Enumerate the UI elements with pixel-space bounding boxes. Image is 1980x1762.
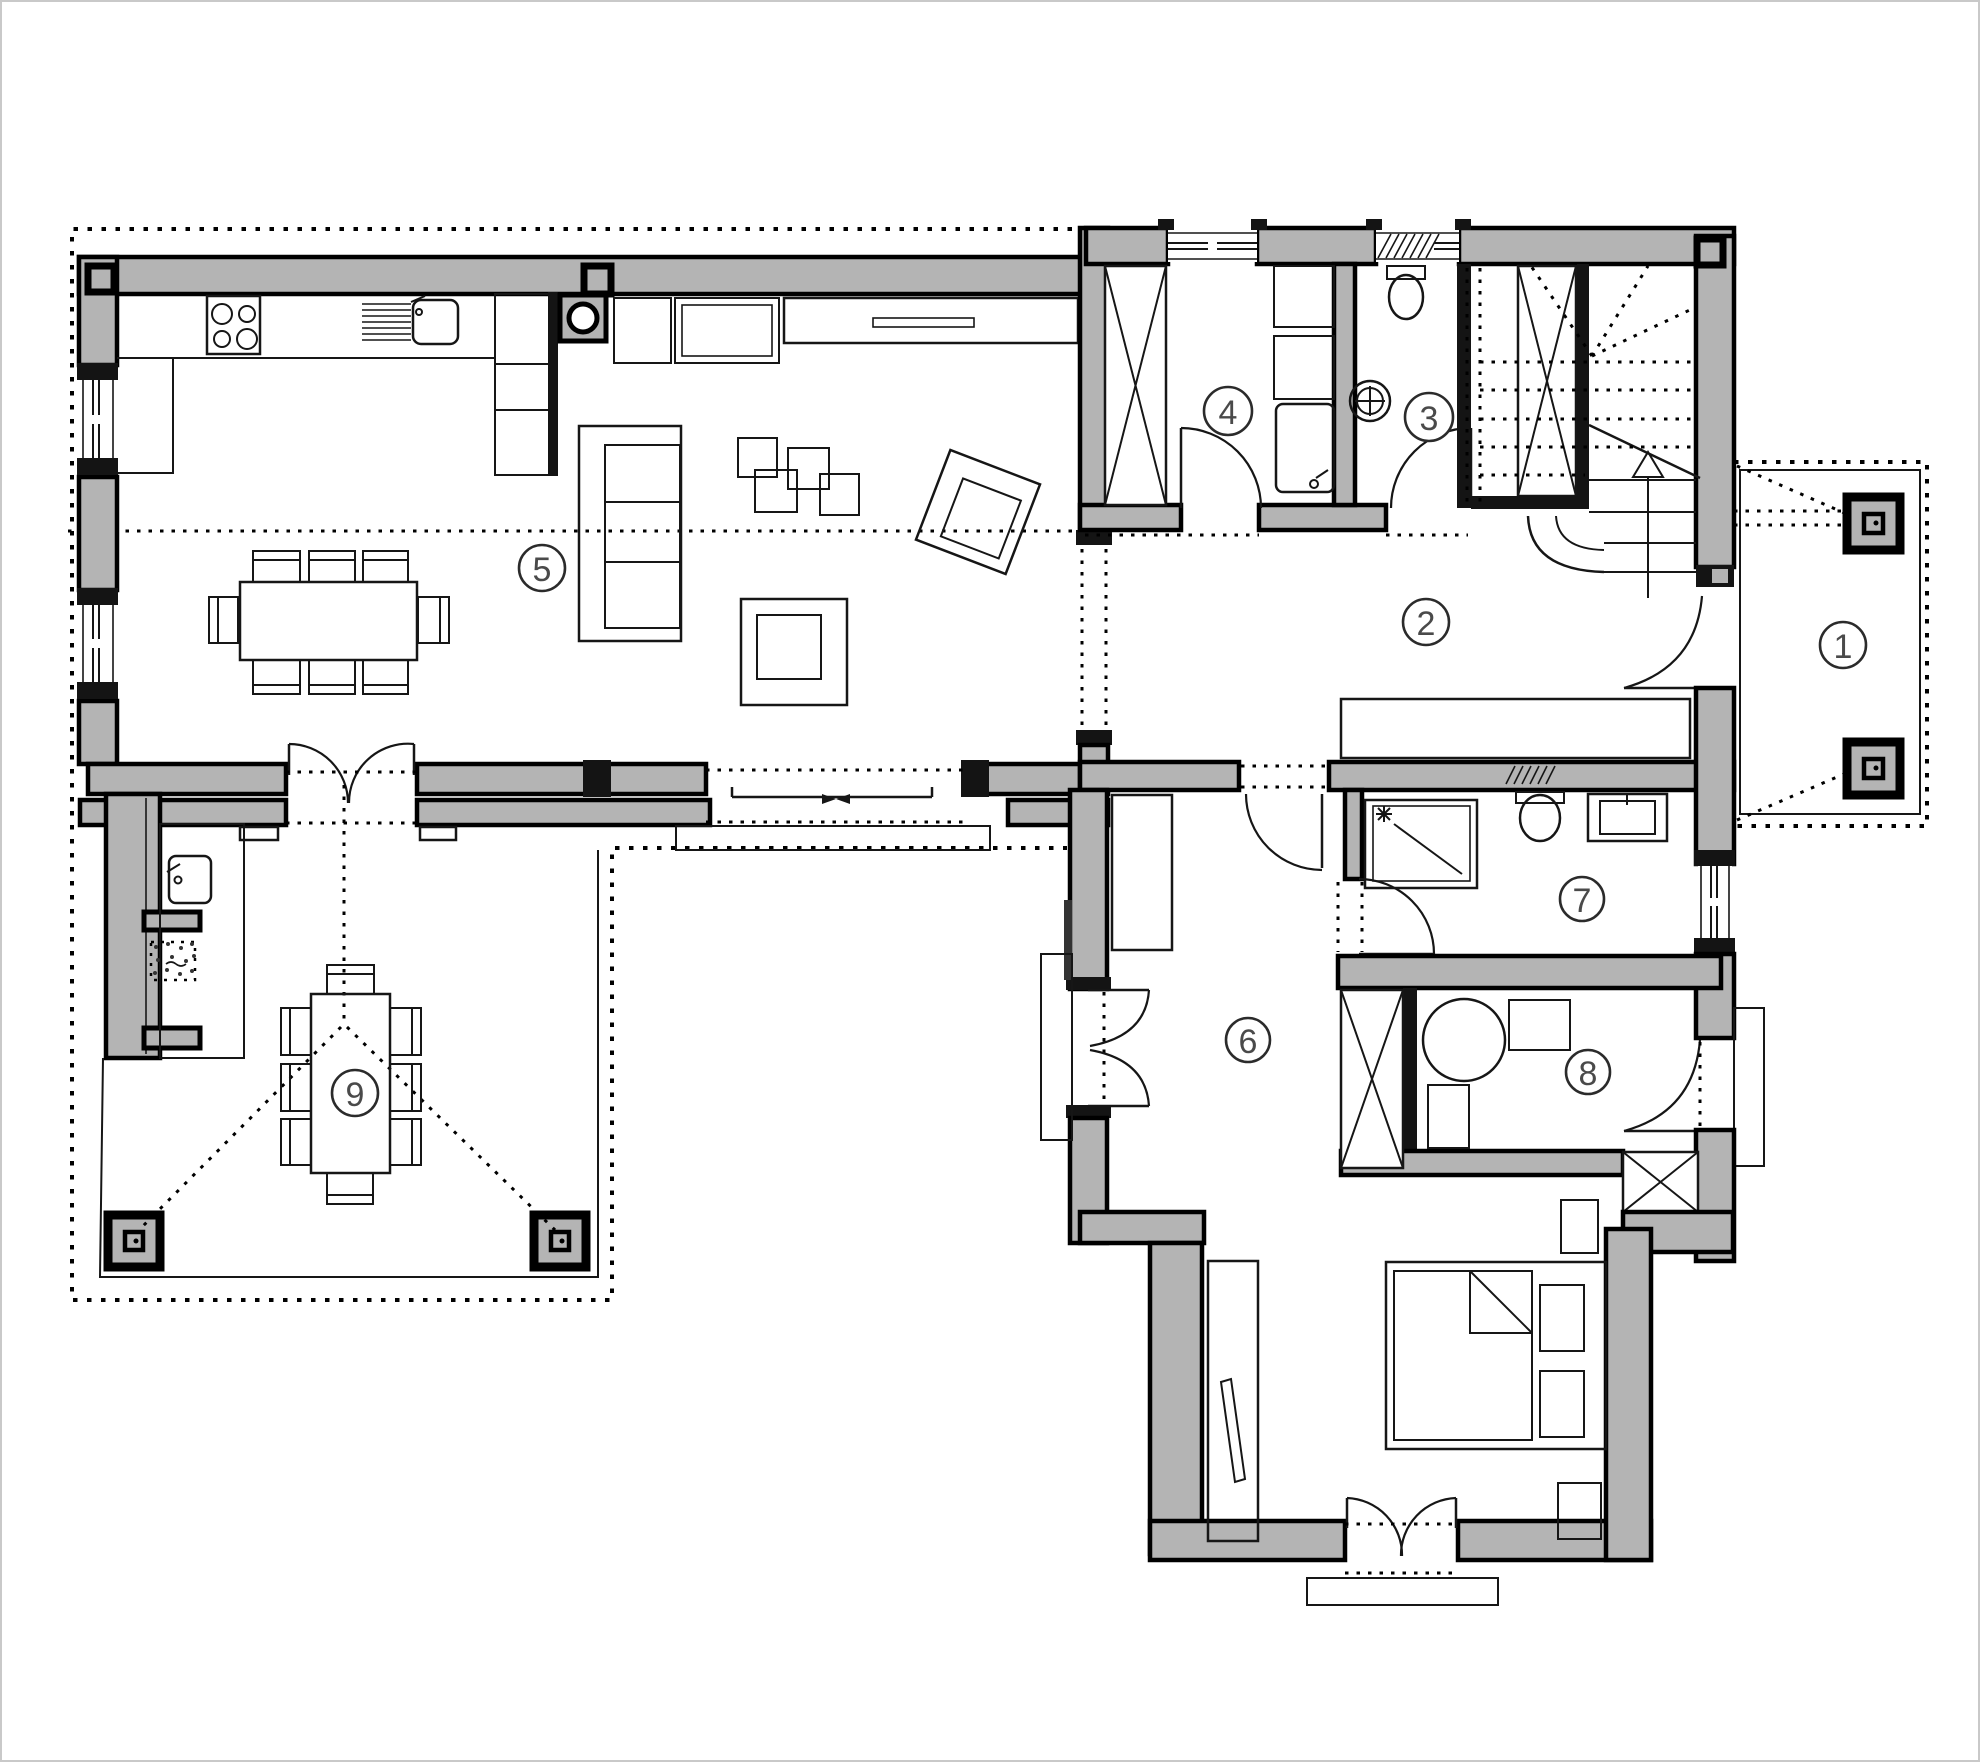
svg-text:4: 4: [1219, 394, 1238, 432]
svg-text:1: 1: [1834, 628, 1853, 666]
svg-text:6: 6: [1239, 1023, 1258, 1061]
svg-text:7: 7: [1573, 882, 1592, 920]
svg-text:3: 3: [1420, 400, 1439, 438]
svg-text:9: 9: [346, 1076, 365, 1114]
svg-text:5: 5: [533, 551, 552, 589]
svg-text:8: 8: [1579, 1055, 1598, 1093]
svg-text:2: 2: [1417, 605, 1436, 643]
